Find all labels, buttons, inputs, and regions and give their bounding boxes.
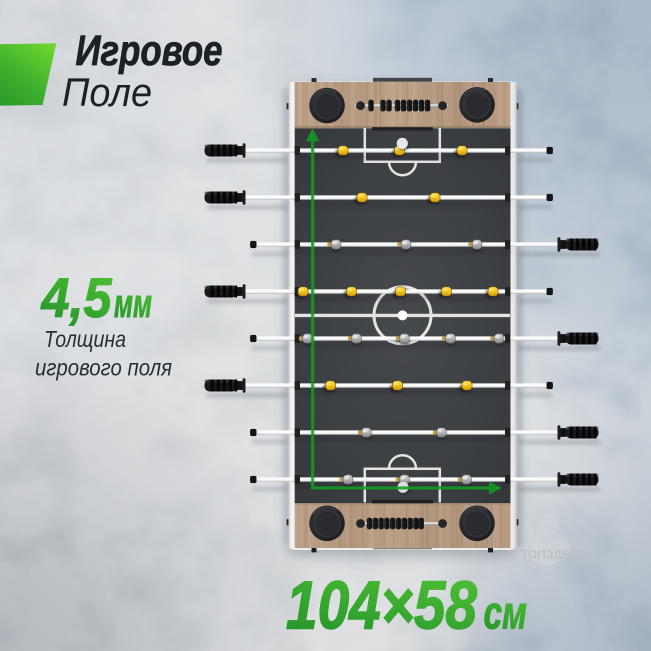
svg-text:4,5: 4,5	[41, 267, 113, 329]
svg-text:мм: мм	[114, 282, 152, 326]
svg-text:ТОПЗДРАВ: ТОПЗДРАВ	[521, 550, 586, 562]
svg-text:см: см	[484, 587, 528, 639]
svg-text:Игровое: Игровое	[76, 27, 223, 75]
svg-text:104×58: 104×58	[286, 569, 477, 644]
svg-text:Поле: Поле	[62, 71, 152, 115]
svg-text:Толщина: Толщина	[44, 326, 126, 352]
svg-text:игрового поля: игрового поля	[35, 355, 172, 381]
